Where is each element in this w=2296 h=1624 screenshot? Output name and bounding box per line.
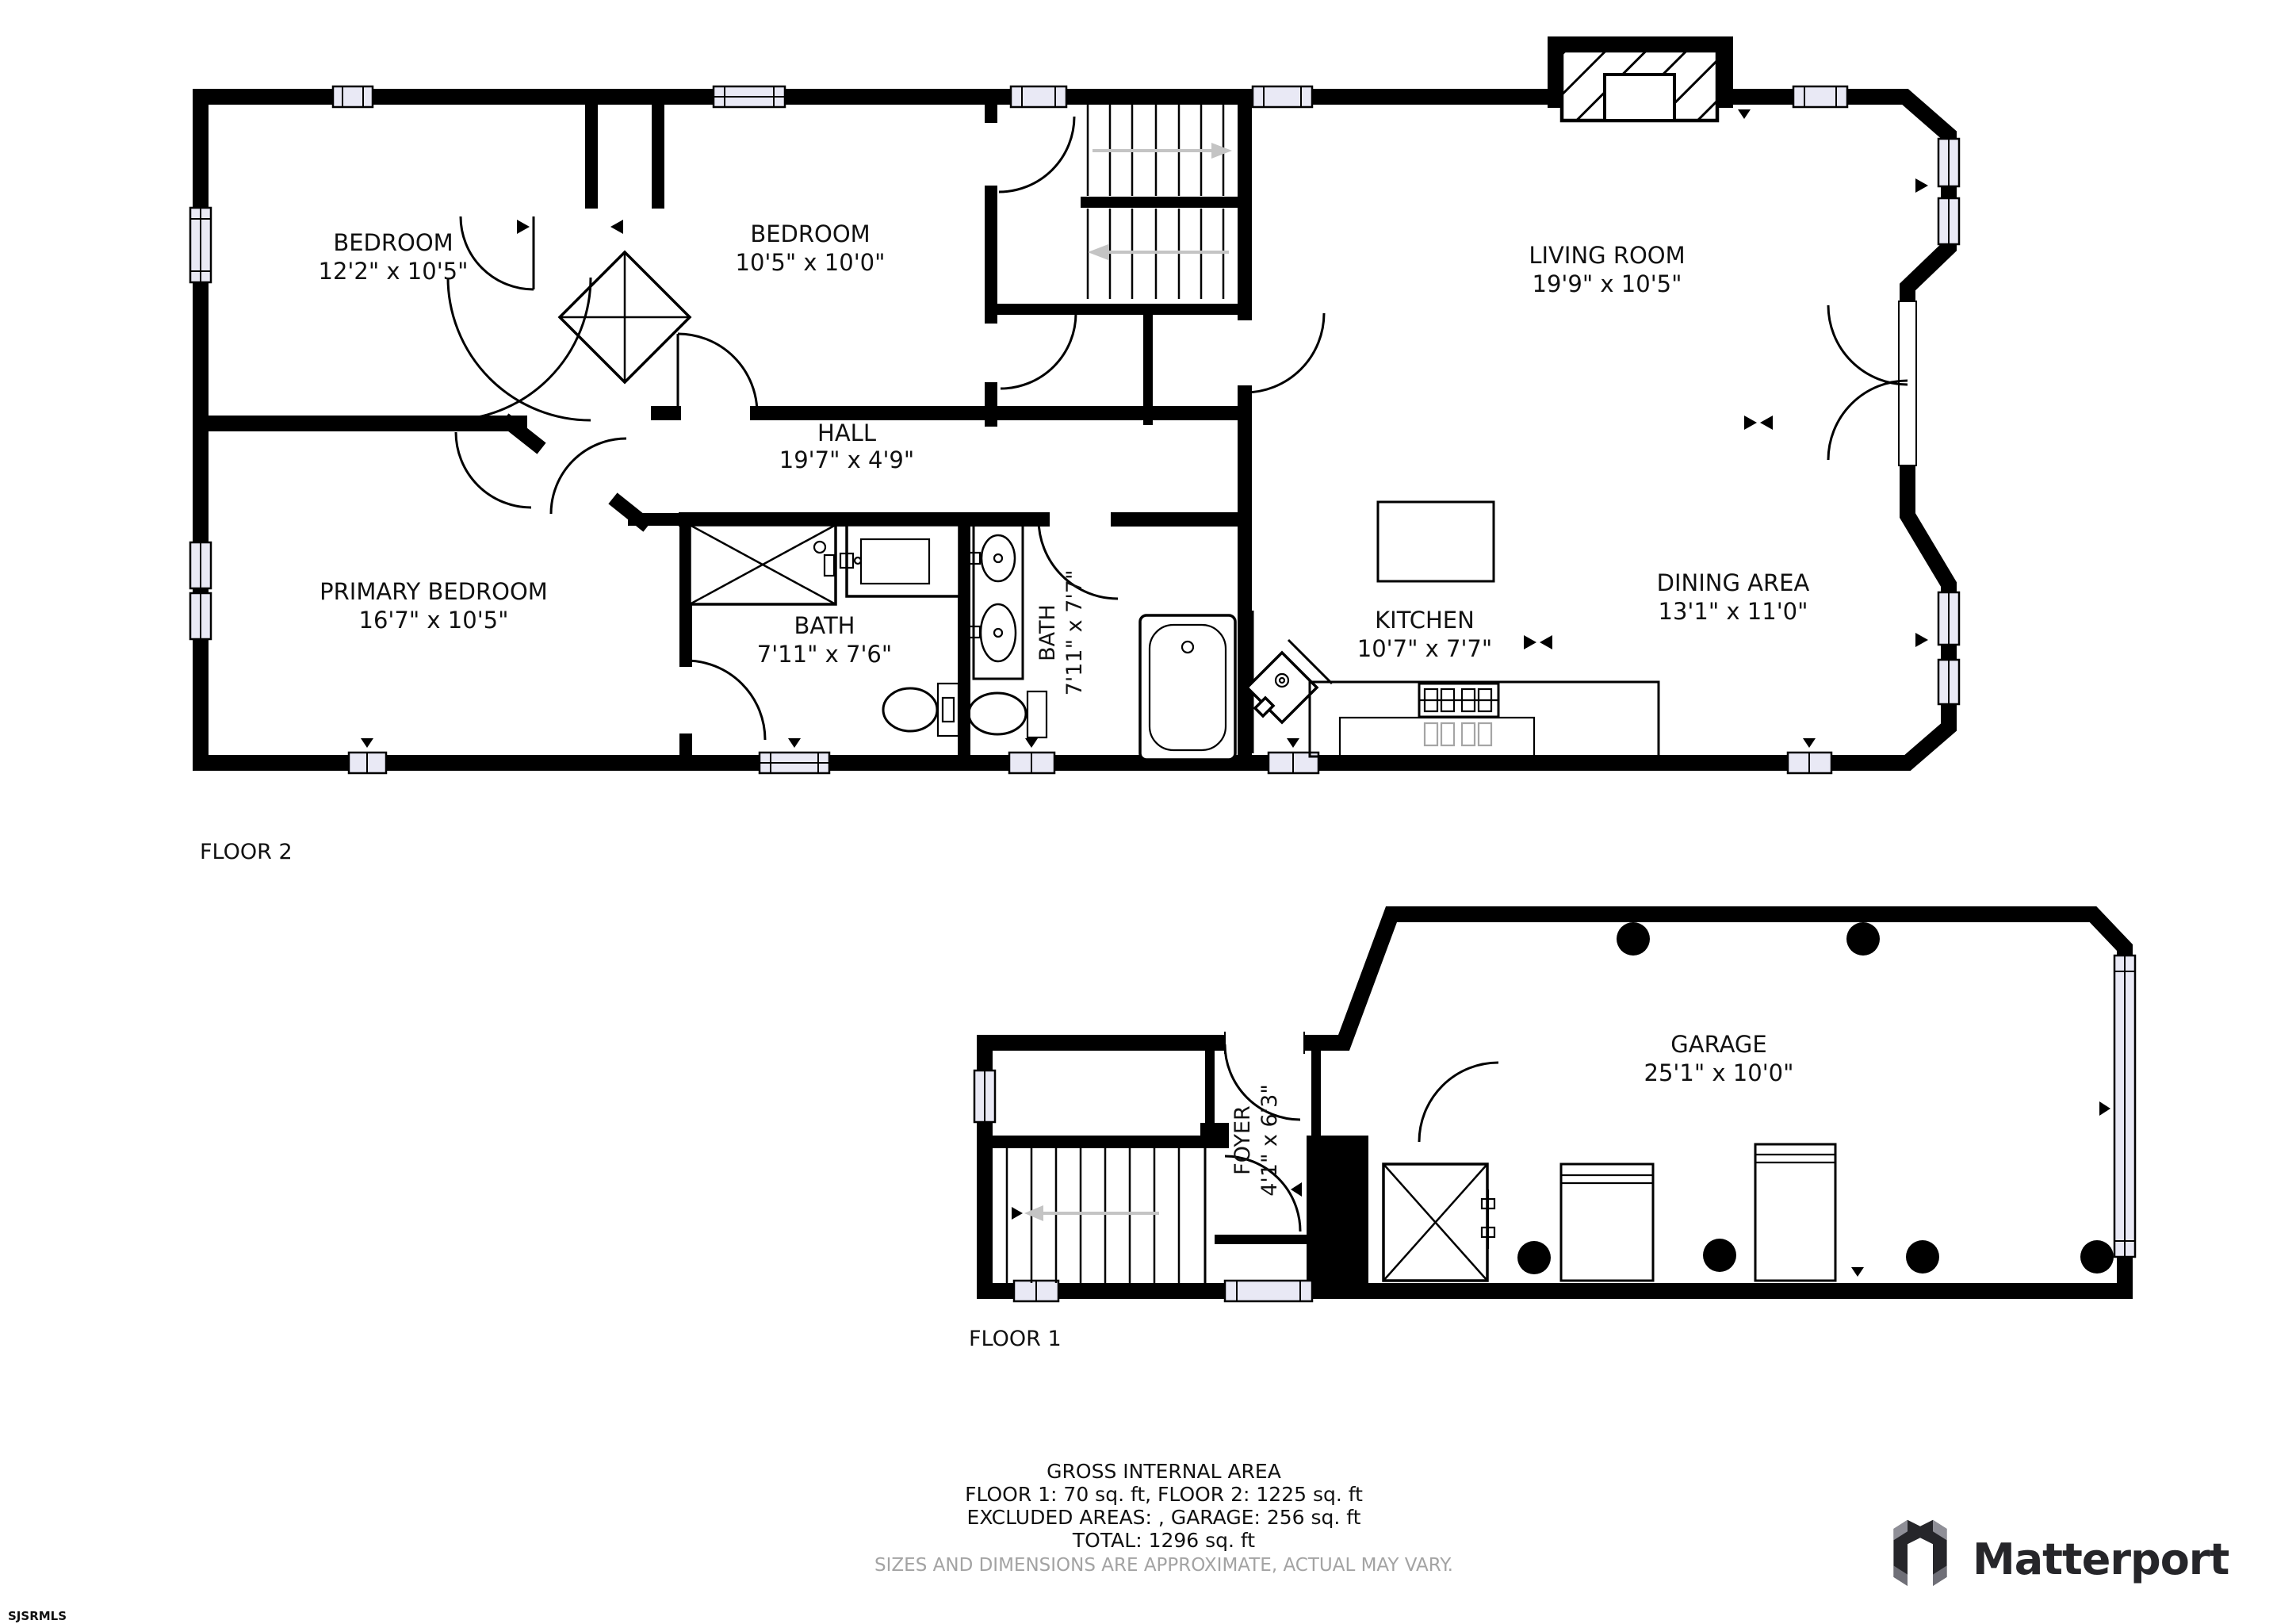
room-dims-garage: 25'1" x 10'0" <box>1644 1059 1794 1086</box>
camera-marker <box>1744 416 1773 430</box>
room-label-garage: GARAGE <box>1670 1031 1766 1058</box>
garage-contents <box>1383 922 2114 1281</box>
window <box>190 208 211 282</box>
shower <box>690 525 836 604</box>
window <box>974 1071 995 1122</box>
column <box>1517 1241 1551 1274</box>
room-dims-kitchen: 10'7" x 7'7" <box>1357 635 1492 662</box>
room-dims-hall: 19'7" x 4'9" <box>779 446 914 473</box>
window <box>1253 86 1312 107</box>
double-vanity <box>969 523 1023 679</box>
room-dims-dining: 13'1" x 11'0" <box>1659 598 1808 625</box>
room-label-hall: HALL <box>817 419 876 446</box>
window <box>333 86 373 107</box>
floor2-plan: BEDROOM 12'2" x 10'5" BEDROOM 10'5" x 10… <box>190 36 1959 864</box>
room-dims-bath1: 7'11" x 7'6" <box>757 641 892 668</box>
bathtub <box>1140 615 1235 760</box>
floor1-interior-walls <box>985 1043 1368 1291</box>
area-summary: GROSS INTERNAL AREA FLOOR 1: 70 sq. ft, … <box>874 1460 1453 1576</box>
floor1-windows <box>974 956 2135 1301</box>
appliance <box>1561 1164 1653 1281</box>
window <box>714 86 785 107</box>
summary-line2: EXCLUDED AREAS: , GARAGE: 256 sq. ft <box>967 1506 1361 1529</box>
camera-marker <box>1524 635 1552 649</box>
closet-diamond <box>560 252 690 382</box>
utility-closet <box>1383 1164 1494 1281</box>
room-label-bath2: BATH <box>1035 604 1060 661</box>
window <box>1938 139 1959 186</box>
matterport-logo: Matterport <box>1893 1520 2229 1586</box>
summary-title: GROSS INTERNAL AREA <box>1047 1460 1281 1483</box>
appliance <box>1755 1144 1835 1281</box>
room-label-bedroom2: BEDROOM <box>750 220 870 247</box>
foyer-entry-opening <box>1225 1032 1304 1054</box>
room-dims-bedroom2: 10'5" x 10'0" <box>736 249 886 276</box>
floor-plan-canvas: BEDROOM 12'2" x 10'5" BEDROOM 10'5" x 10… <box>0 0 2296 1624</box>
floor1-plan: FOYER 4'1" x 6'3" GARAGE 25'1" x 10'0" F… <box>969 914 2135 1351</box>
matterport-logo-icon <box>1893 1520 1946 1586</box>
window <box>1225 1281 1312 1301</box>
room-label-bath1: BATH <box>794 612 855 639</box>
column <box>1906 1240 1939 1274</box>
room-dims-foyer: 4'1" x 6'3" <box>1257 1084 1282 1197</box>
window <box>1793 86 1847 107</box>
column <box>1617 922 1650 956</box>
stove-reflection <box>1425 723 1491 745</box>
floor1-outer-walls <box>985 914 2125 1291</box>
mls-watermark: SJSRMLS <box>8 1609 67 1623</box>
floor2-interior-walls <box>201 97 1245 763</box>
matterport-logo-text: Matterport <box>1973 1534 2229 1584</box>
window <box>1009 753 1054 773</box>
floor2-room-labels: BEDROOM 12'2" x 10'5" BEDROOM 10'5" x 10… <box>319 220 1810 695</box>
window <box>1011 86 1066 107</box>
vanity-sink <box>840 525 959 596</box>
room-dims-bedroom1: 12'2" x 10'5" <box>319 258 469 285</box>
window <box>190 542 211 588</box>
window <box>760 753 829 773</box>
room-dims-living: 19'9" x 10'5" <box>1533 270 1682 297</box>
window <box>1788 753 1831 773</box>
corner-sink <box>1247 653 1317 722</box>
column <box>2080 1240 2114 1274</box>
window <box>1938 592 1959 645</box>
kitchen-table <box>1378 502 1494 581</box>
floor1-stairs <box>1007 1148 1179 1283</box>
fireplace <box>1548 36 1733 121</box>
column <box>1703 1239 1736 1272</box>
room-label-living: LIVING ROOM <box>1529 242 1685 269</box>
toilet <box>883 684 959 736</box>
summary-disclaimer: SIZES AND DIMENSIONS ARE APPROXIMATE, AC… <box>874 1555 1453 1576</box>
room-label-primary: PRIMARY BEDROOM <box>320 578 548 605</box>
summary-line3: TOTAL: 1296 sq. ft <box>1072 1529 1255 1552</box>
column <box>1846 922 1880 956</box>
window <box>190 593 211 639</box>
room-dims-bath2: 7'11" x 7'7" <box>1062 570 1087 696</box>
bath2-fixtures <box>969 523 1235 760</box>
room-label-foyer: FOYER <box>1230 1105 1255 1175</box>
stove <box>1419 684 1498 717</box>
window <box>1938 198 1959 244</box>
window <box>349 753 386 773</box>
room-label-dining: DINING AREA <box>1657 569 1810 596</box>
room-label-kitchen: KITCHEN <box>1375 607 1475 634</box>
wall-mass <box>1307 1136 1368 1291</box>
floor2-label: FLOOR 2 <box>200 840 293 864</box>
toilet <box>969 691 1047 737</box>
summary-line1: FLOOR 1: 70 sq. ft, FLOOR 2: 1225 sq. ft <box>965 1483 1363 1506</box>
room-dims-primary: 16'7" x 10'5" <box>359 607 509 634</box>
window <box>2114 956 2135 1257</box>
floor1-label: FLOOR 1 <box>969 1327 1062 1351</box>
room-label-bedroom1: BEDROOM <box>333 229 453 256</box>
window <box>1938 660 1959 704</box>
window <box>1014 1281 1058 1301</box>
